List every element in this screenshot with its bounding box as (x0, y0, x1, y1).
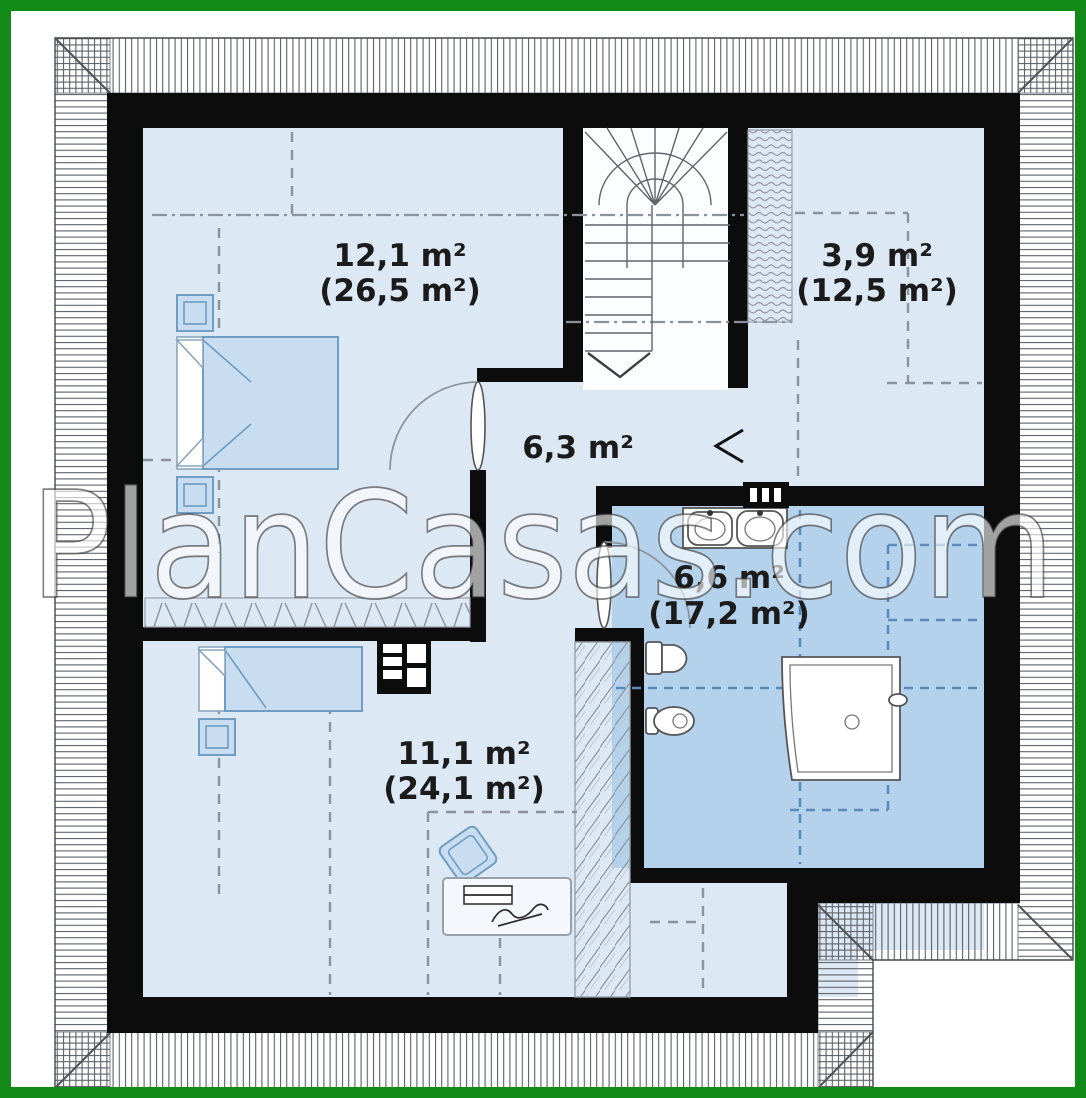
wall-stair-left (563, 128, 583, 380)
nightstand-top (199, 719, 235, 755)
shelf-slot (383, 644, 402, 653)
shelf-box (407, 644, 426, 663)
wall-exterior-notch (787, 868, 818, 1033)
roof-band-bath-bottom (818, 903, 1018, 960)
nightstand (177, 295, 213, 331)
knee-wall-lower (575, 642, 630, 997)
footprint-notch (858, 950, 1080, 1090)
wall-strip-top (642, 868, 787, 883)
room-label-bedroom-upper: 12,1 m² (333, 238, 466, 274)
shelf-slot (383, 657, 402, 666)
desk (443, 878, 571, 935)
knee-wall-storage (748, 130, 792, 322)
watermark-text: PlanCasas.com (30, 460, 1055, 632)
floor-plan-page: 12,1 m² (26,5 m²) 3,9 m² (12,5 m²) 6,3 m… (0, 0, 1086, 1098)
shelf-box (407, 668, 426, 687)
shelf-slot (383, 670, 402, 679)
bidet-bowl (654, 707, 694, 735)
wall-exterior-bath-bottom (787, 868, 1020, 903)
wall-exterior-top (107, 93, 1020, 128)
room-label-bedroom-lower-total: (24,1 m²) (383, 771, 545, 807)
bathtub-faucet (889, 694, 907, 706)
toilet-bowl (662, 645, 686, 672)
double-bed (177, 337, 338, 469)
toilet-tank (646, 642, 662, 674)
nightstand-top (177, 295, 213, 331)
room-label-bedroom-lower: 11,1 m² (397, 736, 530, 772)
single-bed (199, 647, 362, 711)
roof-band-bottom (55, 1032, 873, 1088)
wall-stair-right (728, 93, 748, 388)
toilet (646, 642, 686, 674)
floor-plan-svg: 12,1 m² (26,5 m²) 3,9 m² (12,5 m²) 6,3 m… (0, 0, 1086, 1098)
wall-exterior-bottom (107, 997, 818, 1033)
bedroom-door-leaf (471, 382, 485, 470)
wall-bedroom-jog (477, 368, 583, 382)
corner-bathtub (782, 657, 907, 780)
roof-band-top (55, 38, 1073, 93)
nightstand (199, 719, 235, 755)
bathtub-rim (782, 657, 900, 780)
bidet (646, 707, 694, 735)
shelving-unit (377, 637, 431, 694)
wall-bathroom-west-low (630, 628, 644, 883)
room-label-storage: 3,9 m² (821, 238, 933, 274)
room-label-bedroom-upper-total: (26,5 m²) (319, 273, 481, 309)
room-label-storage-total: (12,5 m²) (796, 273, 958, 309)
